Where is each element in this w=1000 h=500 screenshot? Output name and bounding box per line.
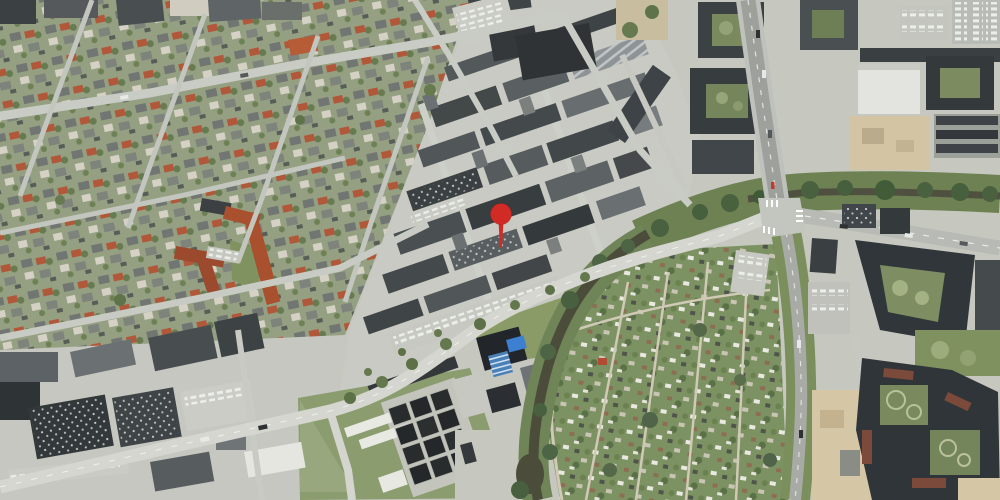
south-road xyxy=(786,232,801,500)
roadside-parking xyxy=(730,250,770,296)
map-viewport xyxy=(0,0,1000,500)
map-canvas[interactable] xyxy=(0,0,1000,500)
intersection xyxy=(758,198,806,238)
white-building xyxy=(858,64,920,114)
white-row-units xyxy=(952,0,1000,44)
terraced-rows xyxy=(934,114,1000,158)
